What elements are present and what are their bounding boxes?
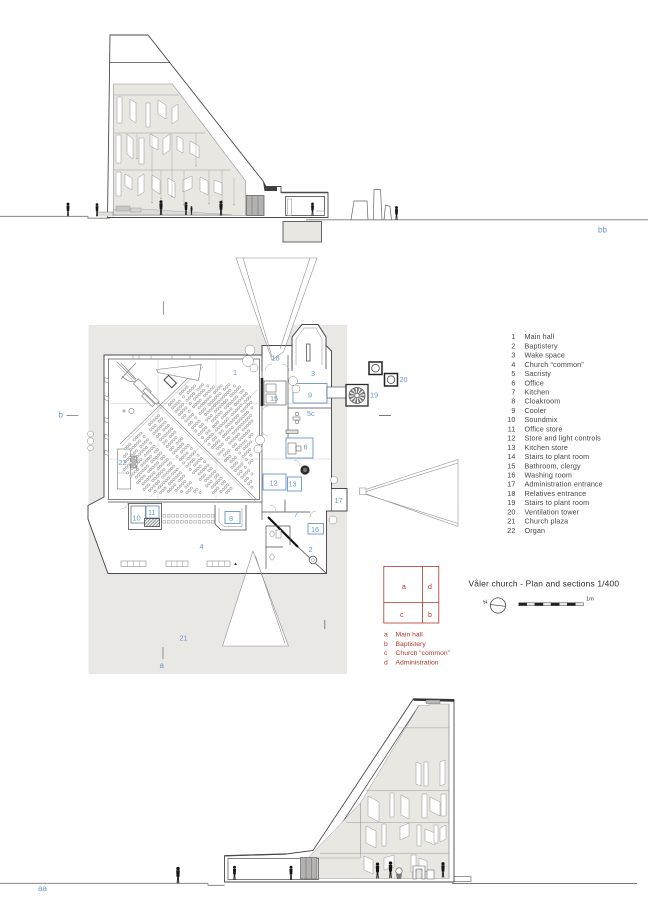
svg-text:12: 12: [270, 479, 278, 488]
svg-text:Bathroom, clergy: Bathroom, clergy: [525, 461, 582, 470]
svg-text:5: 5: [511, 369, 515, 378]
svg-text:2: 2: [511, 341, 515, 350]
svg-text:16: 16: [507, 471, 515, 480]
svg-text:19: 19: [507, 498, 515, 507]
svg-text:a: a: [160, 661, 165, 670]
svg-text:Kitchen store: Kitchen store: [525, 443, 569, 452]
svg-text:b: b: [59, 411, 64, 420]
svg-text:16: 16: [311, 525, 319, 534]
svg-text:10: 10: [507, 415, 515, 424]
svg-text:15: 15: [507, 461, 515, 470]
svg-text:aa: aa: [38, 884, 47, 893]
svg-text:Office store: Office store: [525, 424, 563, 433]
svg-text:Kitchen: Kitchen: [525, 388, 550, 397]
svg-text:19: 19: [370, 391, 378, 400]
svg-text:13: 13: [289, 480, 297, 489]
svg-text:Cloakroom: Cloakroom: [525, 397, 561, 406]
svg-text:Ventilation tower: Ventilation tower: [525, 507, 580, 516]
svg-text:N: N: [483, 599, 489, 606]
svg-text:4: 4: [511, 360, 515, 369]
svg-text:a: a: [384, 632, 388, 639]
svg-text:18: 18: [272, 354, 280, 363]
svg-text:Church plaza: Church plaza: [525, 517, 569, 526]
svg-text:11: 11: [508, 424, 516, 433]
svg-text:1m: 1m: [586, 597, 594, 603]
svg-text:Wake space: Wake space: [525, 351, 565, 360]
svg-text:c: c: [384, 650, 388, 657]
svg-text:20: 20: [507, 507, 515, 516]
svg-text:21: 21: [507, 517, 515, 526]
svg-text:Soundmix: Soundmix: [525, 415, 558, 424]
svg-text:d: d: [384, 660, 388, 667]
svg-text:10: 10: [133, 514, 141, 523]
svg-text:3: 3: [311, 369, 315, 378]
svg-text:8: 8: [511, 397, 515, 406]
svg-text:22: 22: [507, 526, 515, 535]
svg-text:Office: Office: [525, 378, 544, 387]
svg-text:Administration: Administration: [396, 660, 439, 667]
svg-text:1: 1: [511, 332, 515, 341]
svg-text:Stairs to plant room: Stairs to plant room: [525, 452, 590, 461]
svg-text:7: 7: [294, 510, 298, 519]
svg-text:6: 6: [511, 378, 515, 387]
svg-text:9: 9: [308, 391, 312, 400]
svg-text:Administration entrance: Administration entrance: [525, 480, 603, 489]
svg-text:17: 17: [507, 480, 515, 489]
svg-text:15: 15: [270, 394, 278, 403]
svg-text:Stairs to plant room: Stairs to plant room: [525, 498, 590, 507]
svg-text:1: 1: [233, 368, 237, 377]
svg-text:18: 18: [507, 489, 515, 498]
svg-text:8: 8: [229, 514, 233, 523]
svg-text:20: 20: [400, 375, 408, 384]
svg-text:6: 6: [304, 443, 308, 452]
svg-text:d: d: [428, 584, 432, 591]
svg-text:Washing room: Washing room: [525, 471, 573, 480]
svg-text:11: 11: [148, 508, 156, 517]
svg-text:22: 22: [119, 458, 127, 467]
svg-text:Sacristy: Sacristy: [525, 369, 552, 378]
svg-text:3: 3: [511, 351, 515, 360]
svg-text:Church “common”: Church “common”: [525, 360, 585, 369]
svg-text:4: 4: [200, 542, 204, 551]
svg-text:Baptistery: Baptistery: [396, 641, 427, 648]
svg-text:Baptistery: Baptistery: [525, 341, 558, 350]
svg-text:Church “common”: Church “common”: [396, 650, 451, 657]
svg-text:b: b: [384, 641, 388, 648]
svg-text:9: 9: [511, 406, 515, 415]
svg-text:b: b: [428, 612, 432, 619]
svg-text:7: 7: [511, 388, 515, 397]
svg-text:Main hall: Main hall: [396, 632, 424, 639]
svg-text:2: 2: [309, 545, 313, 554]
svg-text:Våler church - Plan and sectio: Våler church - Plan and sections 1/400: [469, 579, 620, 589]
svg-text:12: 12: [507, 434, 515, 443]
svg-text:14: 14: [507, 452, 515, 461]
svg-text:c: c: [400, 612, 404, 619]
svg-text:Store and light controls: Store and light controls: [525, 434, 602, 443]
svg-text:13: 13: [507, 443, 515, 452]
svg-text:5c: 5c: [307, 409, 315, 418]
svg-text:17: 17: [335, 496, 343, 505]
svg-text:bb: bb: [598, 226, 607, 235]
svg-text:21: 21: [180, 634, 188, 643]
svg-text:a: a: [402, 584, 406, 591]
svg-text:Main hall: Main hall: [525, 332, 555, 341]
svg-text:Relatives entrance: Relatives entrance: [525, 489, 587, 498]
svg-text:Cooler: Cooler: [525, 406, 547, 415]
svg-text:Organ: Organ: [525, 526, 546, 535]
